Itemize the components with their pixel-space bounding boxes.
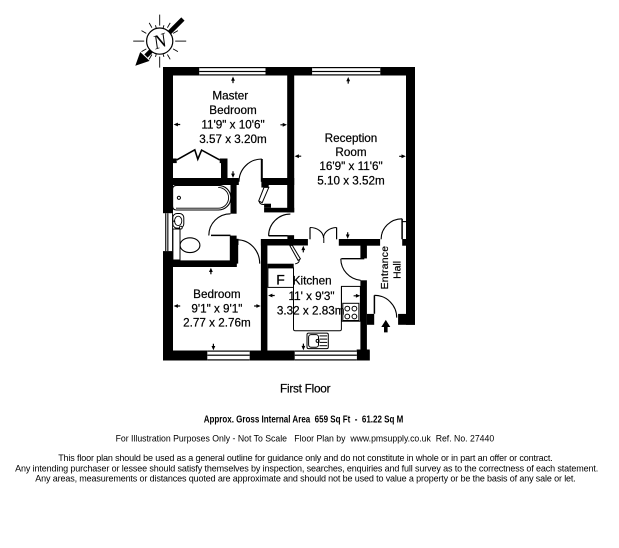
svg-text:16'9" x 11'6": 16'9" x 11'6" [319, 160, 382, 173]
svg-text:9'1" x 9'1": 9'1" x 9'1" [191, 302, 242, 315]
svg-text:Entrance: Entrance [380, 246, 391, 290]
svg-text:Reception: Reception [325, 132, 378, 145]
svg-text:Any areas, measurements or dis: Any areas, measurements or distances quo… [35, 474, 576, 484]
svg-text:Any intending purchaser or les: Any intending purchaser or lessee should… [15, 463, 598, 473]
svg-text:Bedroom: Bedroom [193, 288, 240, 301]
svg-text:5.10 x 3.52m: 5.10 x 3.52m [317, 175, 385, 188]
svg-text:3.32 x 2.83m: 3.32 x 2.83m [277, 304, 345, 317]
svg-text:Approx. Gross Internal Area 6: Approx. Gross Internal Area 659 Sq Ft - … [204, 414, 404, 425]
svg-text:2.77 x 2.76m: 2.77 x 2.76m [183, 317, 251, 330]
svg-text:Bedroom: Bedroom [209, 104, 256, 117]
svg-text:Room: Room [335, 146, 366, 159]
svg-text:Master: Master [212, 90, 248, 103]
svg-text:3.57 x 3.20m: 3.57 x 3.20m [199, 133, 267, 146]
svg-text:For Illustration Purposes Only: For Illustration Purposes Only - Not To … [116, 433, 495, 444]
svg-text:11' x 9'3": 11' x 9'3" [288, 290, 334, 303]
svg-text:This floor plan should be used: This floor plan should be used as a gene… [58, 453, 553, 463]
svg-text:First Floor: First Floor [280, 381, 331, 395]
svg-text:11'9" x 10'6": 11'9" x 10'6" [201, 118, 264, 131]
svg-text:F: F [276, 272, 285, 288]
svg-text:Hall: Hall [393, 261, 404, 279]
svg-text:Kitchen: Kitchen [293, 275, 332, 288]
